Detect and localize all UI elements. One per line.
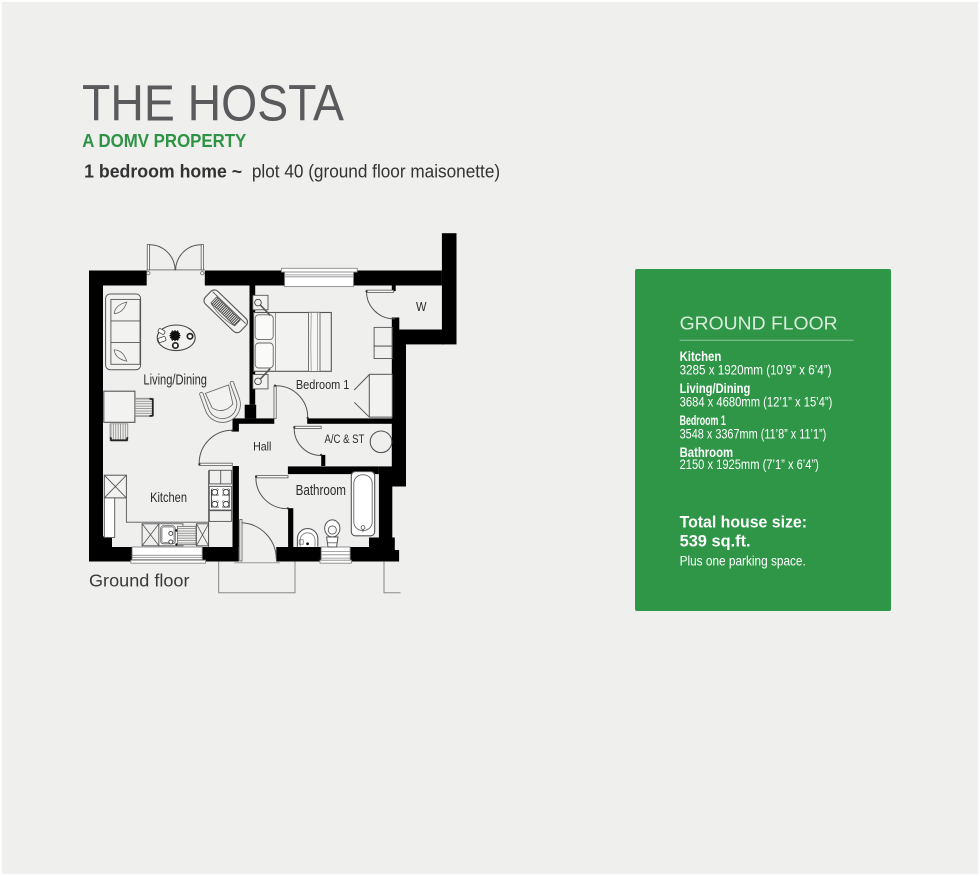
- svg-text:GROUND FLOOR: GROUND FLOOR: [680, 312, 838, 333]
- svg-text:Living/Dining: Living/Dining: [143, 373, 207, 389]
- svg-text:3684 x 4680mm (12’1” x 15’4”): 3684 x 4680mm (12’1” x 15’4”): [680, 394, 833, 410]
- svg-text:Bedroom 1: Bedroom 1: [296, 377, 350, 392]
- svg-text:Hall: Hall: [253, 440, 271, 454]
- svg-text:A DOMV PROPERTY: A DOMV PROPERTY: [82, 130, 247, 151]
- svg-text:3285 x 1920mm (10’9” x 6’4”): 3285 x 1920mm (10’9” x 6’4”): [680, 362, 832, 378]
- svg-text:Bathroom: Bathroom: [296, 483, 346, 499]
- svg-text:Kitchen: Kitchen: [150, 489, 187, 505]
- svg-text:Total house size:: Total house size:: [680, 514, 807, 532]
- svg-text:A/C & ST: A/C & ST: [325, 432, 365, 446]
- svg-text:3548 x 3367mm (11’8” x 11’1”): 3548 x 3367mm (11’8” x 11’1”): [680, 425, 827, 441]
- svg-text:1 bedroom home ~ plot 40 (grou: 1 bedroom home ~ plot 40 (ground floor m…: [84, 162, 500, 182]
- svg-text:2150 x 1925mm (7’1” x 6’4”): 2150 x 1925mm (7’1” x 6’4”): [680, 456, 819, 472]
- svg-text:W: W: [416, 299, 427, 314]
- svg-text:539 sq.ft.: 539 sq.ft.: [680, 533, 751, 551]
- svg-text:Plus one parking space.: Plus one parking space.: [680, 554, 806, 569]
- svg-text:THE HOSTA: THE HOSTA: [82, 75, 344, 132]
- svg-text:Ground floor: Ground floor: [89, 571, 190, 591]
